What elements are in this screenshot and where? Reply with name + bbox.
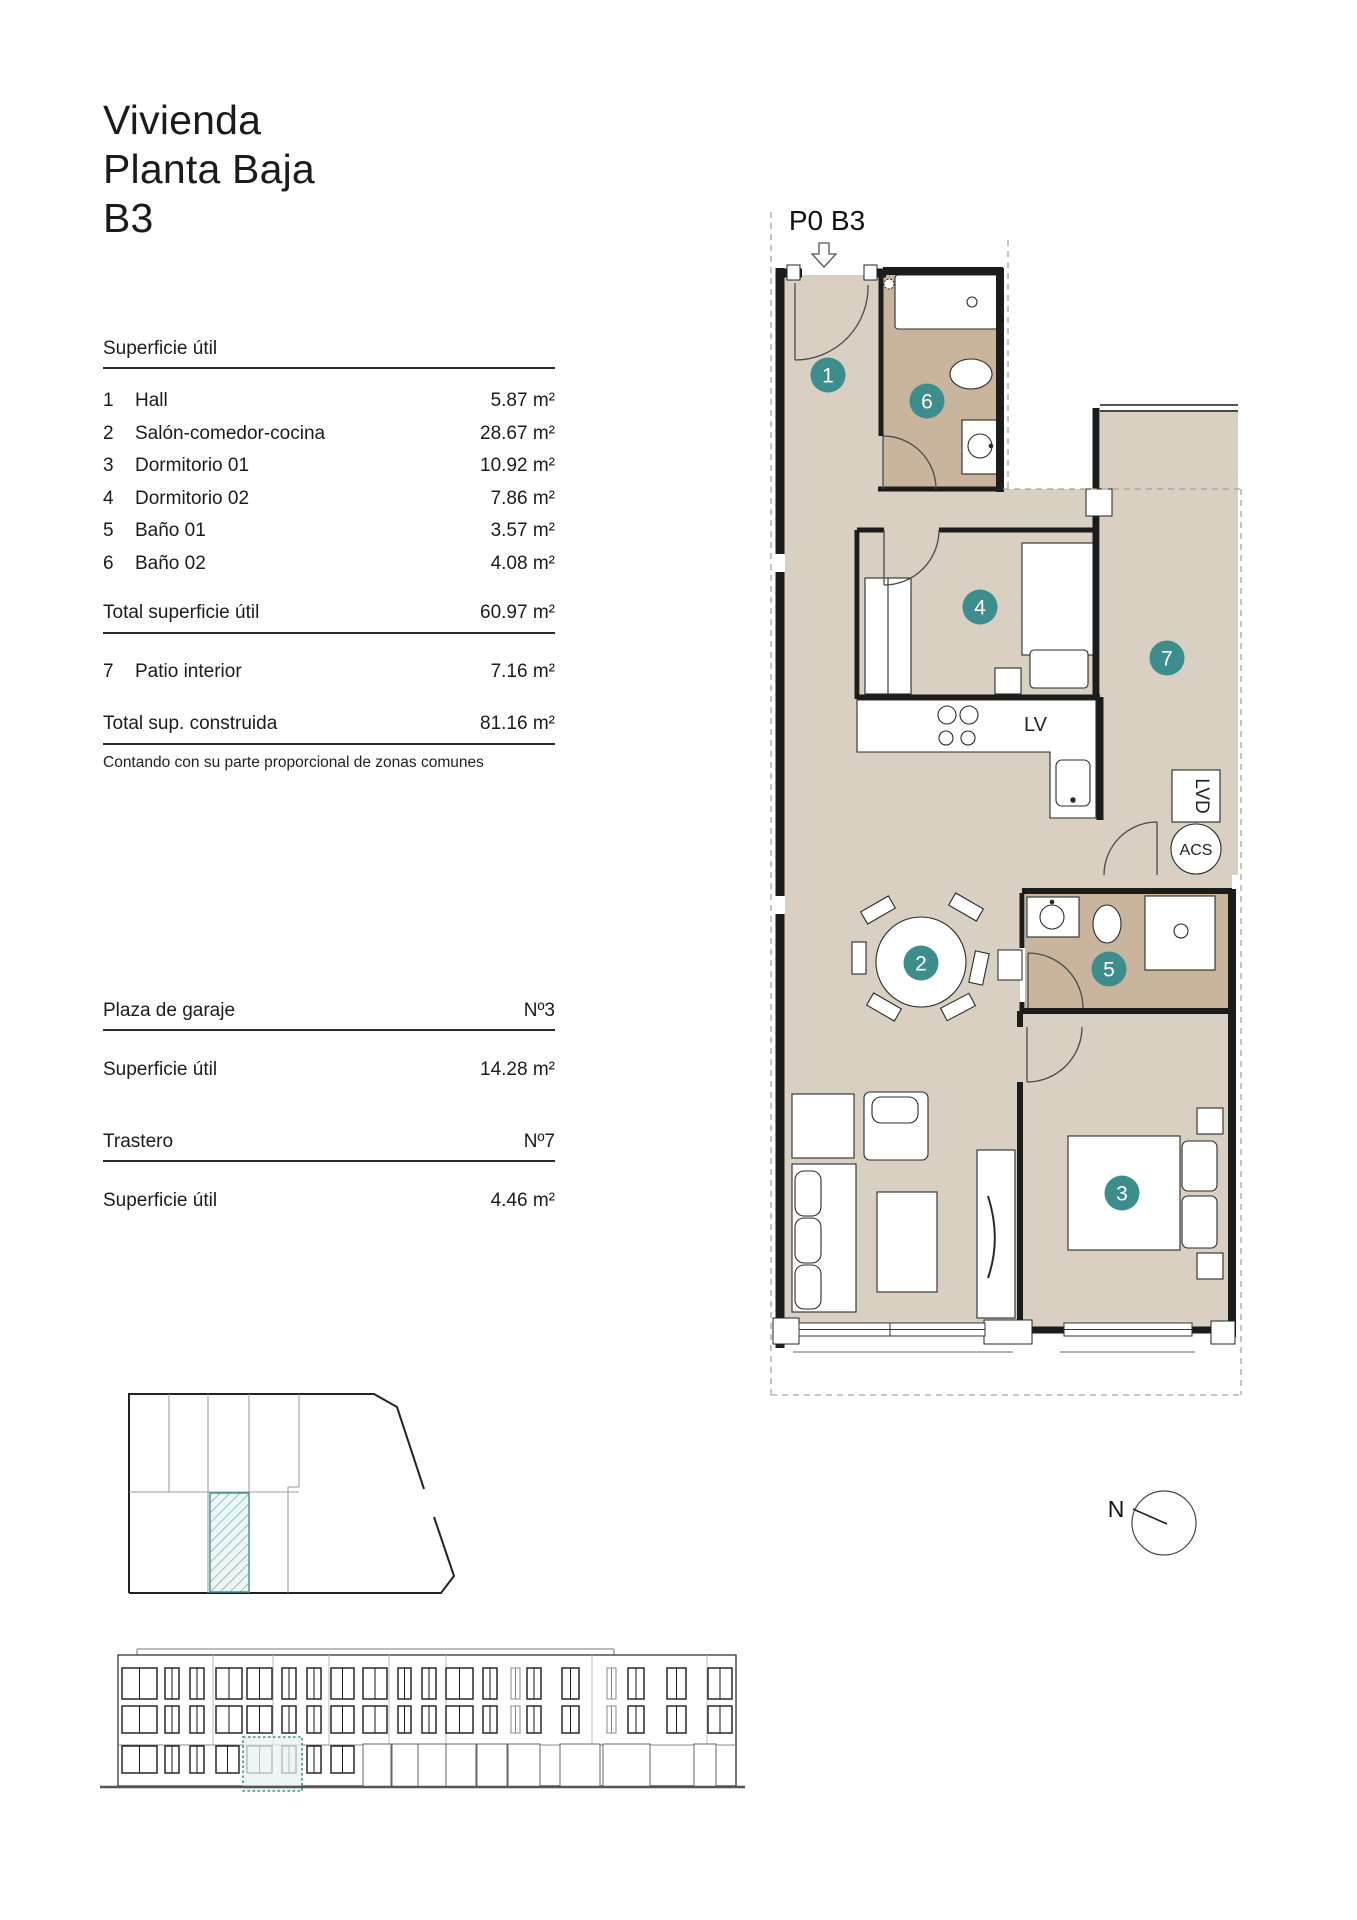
toilet [1093, 905, 1121, 943]
bed-small [1022, 543, 1094, 655]
unit-label: P0 B3 [789, 205, 865, 236]
sofa-cushion [795, 1171, 821, 1216]
room-marker-7: 7 [1150, 641, 1185, 676]
svg-text:6: 6 [921, 391, 933, 414]
tub-drain-icon [967, 297, 977, 307]
entry-arrow-icon [812, 243, 836, 267]
nightstand [995, 668, 1021, 694]
pillow [1182, 1141, 1217, 1191]
highlight-unit-elevation [243, 1737, 302, 1791]
chair [852, 942, 866, 974]
drawings-layer: P0 B3 LV LVD ACS 1 2 3 4 [0, 0, 1357, 1920]
floor-plan: P0 B3 LV LVD ACS 1 2 3 4 [771, 205, 1241, 1395]
tv-unit [977, 1150, 1015, 1318]
north-label: N [1108, 1496, 1125, 1522]
plan-sheet: { "title": {"line1": "Vivienda", "line2"… [0, 0, 1357, 1920]
shower-drain-icon [1174, 924, 1188, 938]
north-compass: N [1108, 1491, 1196, 1555]
tap-icon [989, 444, 993, 448]
hob-burner-icon [939, 731, 953, 745]
room-marker-3: 3 [1105, 1176, 1140, 1211]
toilet [950, 359, 992, 389]
hob-burner-icon [938, 706, 956, 724]
basin-bowl-icon [1040, 905, 1064, 929]
svg-text:2: 2 [915, 953, 927, 976]
bed-small-foot [1030, 650, 1088, 688]
sink-tap-icon [1071, 798, 1075, 802]
pillow [1182, 1196, 1217, 1248]
sofa-cushion [795, 1218, 821, 1263]
sofa-cushion [795, 1265, 821, 1309]
svg-text:4: 4 [974, 597, 986, 620]
tap-icon [1050, 900, 1054, 904]
svg-text:3: 3 [1116, 1183, 1128, 1206]
water-heater-label: ACS [1180, 842, 1213, 859]
room-marker-5: 5 [1092, 952, 1127, 987]
site-plan [129, 1394, 454, 1593]
room-marker-1: 1 [811, 358, 846, 393]
bathtub [895, 275, 998, 329]
side-table [792, 1094, 854, 1158]
armchair-cushion [872, 1097, 918, 1123]
svg-text:7: 7 [1161, 648, 1173, 671]
shower-head-icon [884, 279, 894, 289]
hob-burner-icon [960, 706, 978, 724]
room-marker-2: 2 [904, 946, 939, 981]
building-elevation [100, 1649, 745, 1791]
nightstand [1197, 1253, 1223, 1279]
nightstand [1197, 1108, 1223, 1134]
svg-text:1: 1 [822, 365, 834, 388]
basin-bowl-icon [968, 434, 992, 458]
hob-burner-icon [961, 731, 975, 745]
room-marker-4: 4 [963, 590, 998, 625]
coffee-table [877, 1192, 937, 1292]
dishwasher-label: LV [1024, 714, 1048, 736]
washer-label: LVD [1191, 778, 1212, 814]
room-marker-6: 6 [910, 384, 945, 419]
compass-needle-icon [1133, 1509, 1167, 1524]
svg-text:5: 5 [1103, 959, 1115, 982]
